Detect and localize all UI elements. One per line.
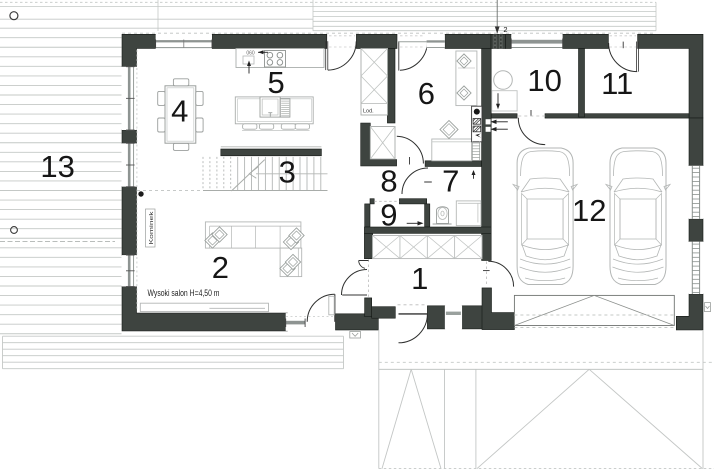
svg-text:8: 8 [380,164,397,199]
svg-text:3: 3 [279,155,296,190]
svg-text:9: 9 [380,197,397,232]
svg-text:Kominek: Kominek [149,211,155,244]
svg-text:7: 7 [442,164,459,199]
svg-text:11: 11 [601,66,633,101]
svg-text:12: 12 [572,193,606,228]
svg-text:4: 4 [171,93,188,128]
svg-text:5: 5 [267,65,284,100]
svg-text:2: 2 [212,250,229,285]
svg-text:060: 060 [246,51,255,57]
svg-text:Wysoki salon H=4,50 m: Wysoki salon H=4,50 m [148,288,220,298]
svg-text:6: 6 [418,76,435,111]
svg-text:Lod.: Lod. [363,109,374,115]
svg-text:2: 2 [503,25,507,34]
svg-text:10: 10 [527,63,561,98]
svg-text:1: 1 [411,261,428,296]
svg-text:13: 13 [40,149,74,184]
